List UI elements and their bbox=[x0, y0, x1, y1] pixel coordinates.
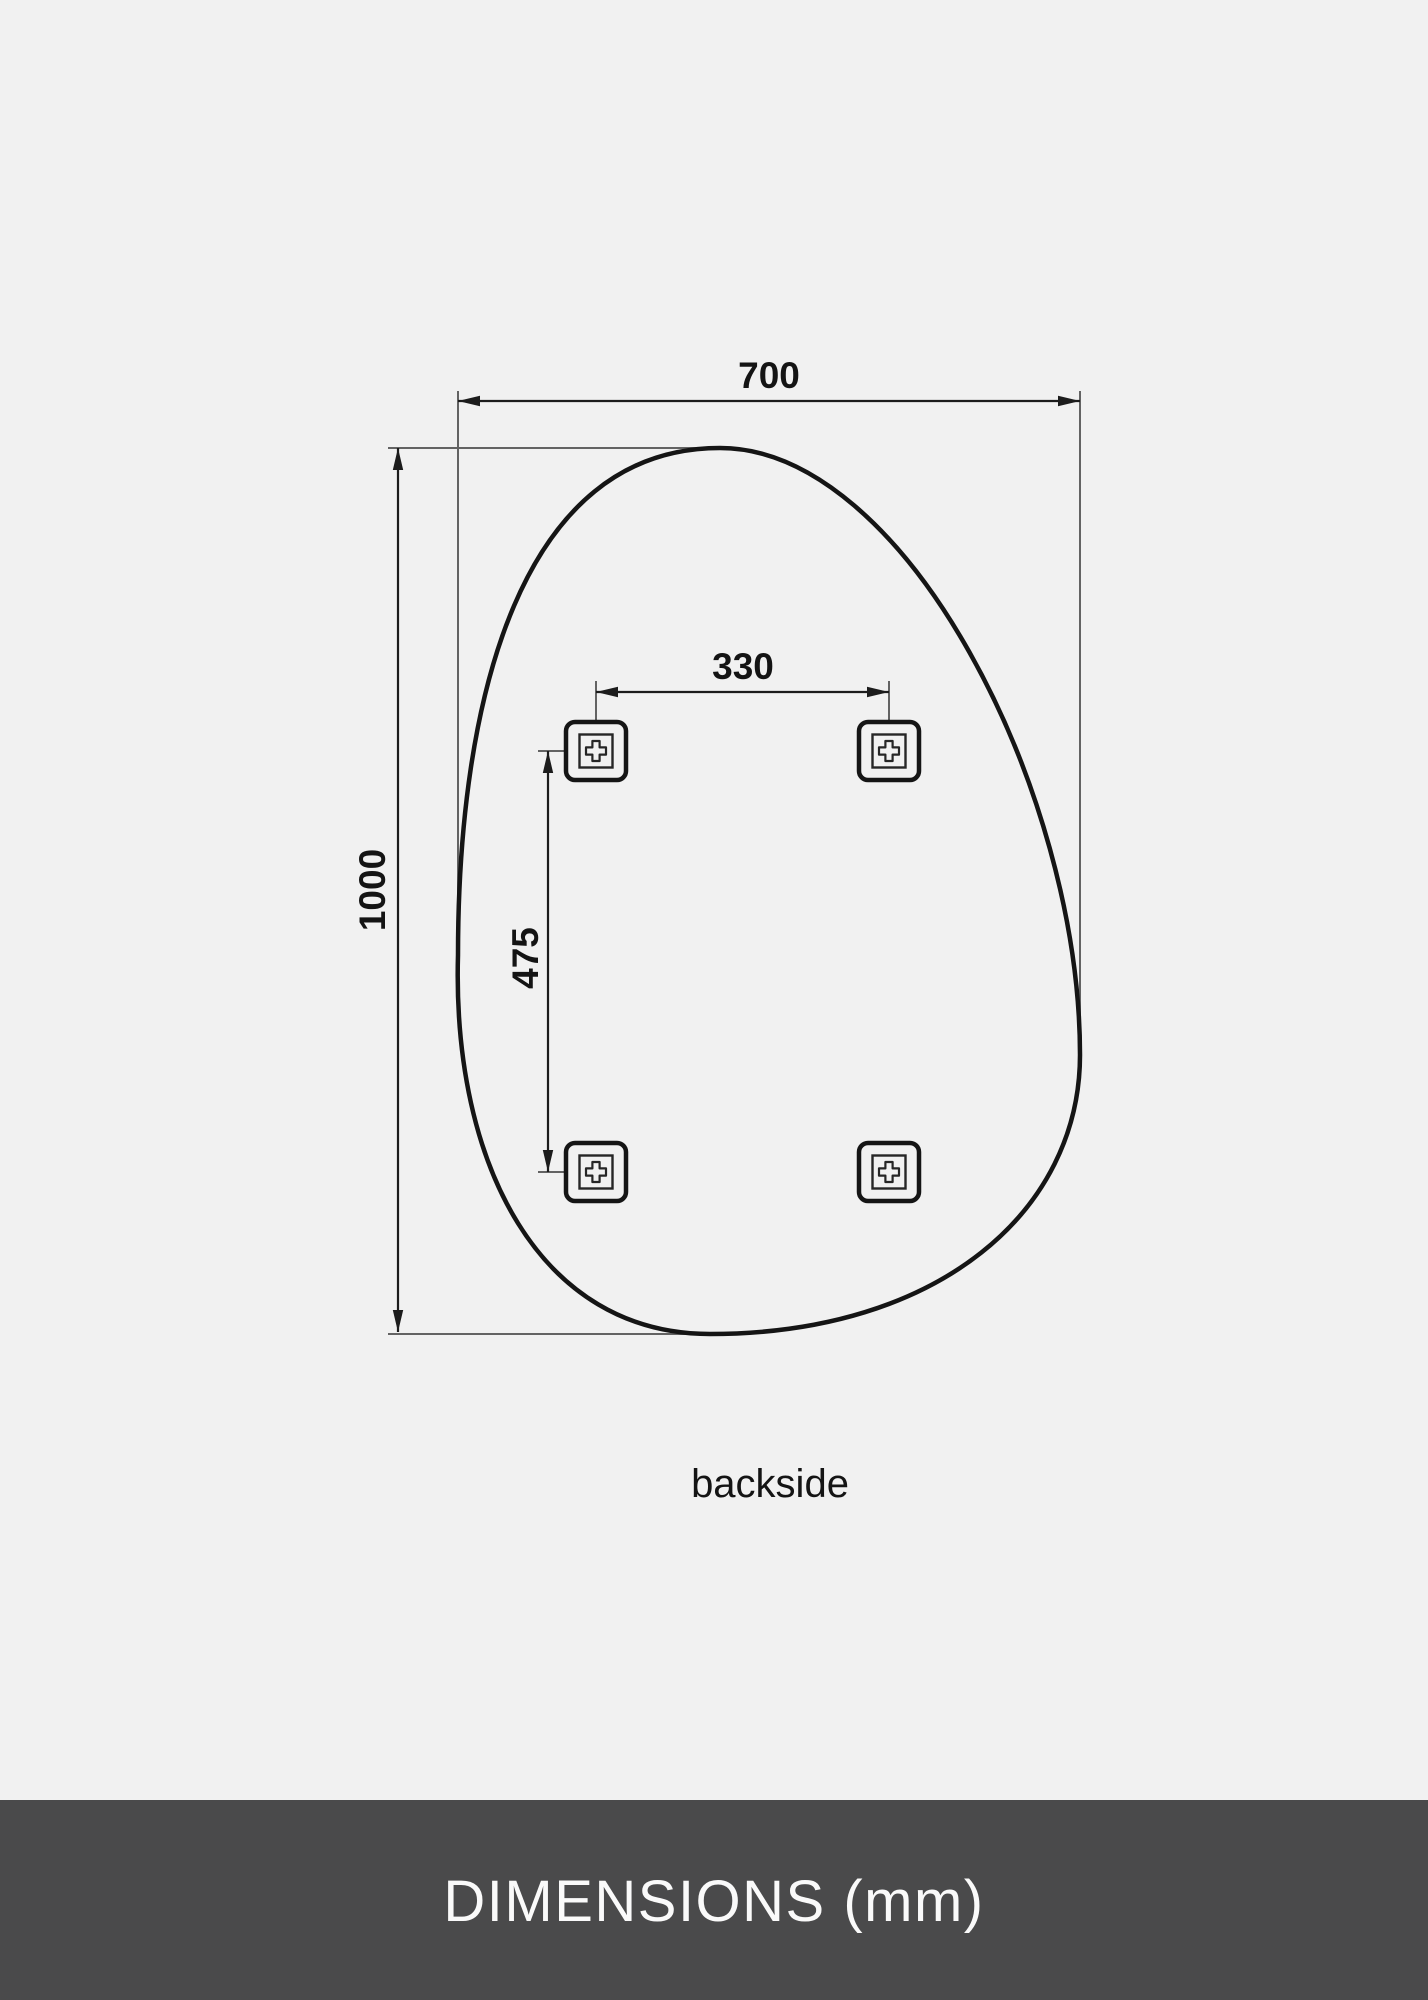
diagram-caption: backside bbox=[691, 1462, 849, 1506]
arrowhead-left-icon bbox=[458, 396, 480, 406]
bracket-outer-square bbox=[566, 1143, 626, 1201]
bracket-spacing-horizontal-label: 330 bbox=[712, 646, 774, 687]
arrowhead-right-icon bbox=[1058, 396, 1080, 406]
arrowhead-up-icon bbox=[393, 448, 403, 470]
mounting-bracket-top-right bbox=[859, 722, 919, 780]
mounting-bracket-top-left bbox=[566, 722, 626, 780]
bracket-spacing-vertical-label: 475 bbox=[505, 927, 546, 989]
arrowhead-right-icon bbox=[867, 687, 889, 697]
footer-title: DIMENSIONS (mm) bbox=[443, 1869, 984, 1934]
bracket-outer-square bbox=[566, 722, 626, 780]
mounting-bracket-bottom-left bbox=[566, 1143, 626, 1201]
width-dimension: 700 bbox=[458, 355, 1080, 406]
height-dimension: 1000 bbox=[352, 448, 403, 1332]
bracket-spacing-vertical-dimension: 475 bbox=[505, 751, 553, 1172]
arrowhead-down-icon bbox=[543, 1150, 553, 1172]
bracket-outer-square bbox=[859, 722, 919, 780]
mirror-dimension-diagram: 700 1000 330 475 bbox=[0, 0, 1428, 2000]
extension-lines bbox=[388, 391, 1080, 1334]
width-dimension-label: 700 bbox=[738, 355, 800, 396]
height-dimension-label: 1000 bbox=[352, 849, 393, 931]
mounting-bracket-bottom-right bbox=[859, 1143, 919, 1201]
arrowhead-left-icon bbox=[596, 687, 618, 697]
mirror-dimension-figure: 700 1000 330 475 bbox=[0, 0, 1428, 2000]
arrowhead-up-icon bbox=[543, 751, 553, 773]
arrowhead-down-icon bbox=[393, 1310, 403, 1332]
bracket-spacing-horizontal-dimension: 330 bbox=[596, 646, 889, 697]
bracket-outer-square bbox=[859, 1143, 919, 1201]
mirror-outline bbox=[458, 448, 1080, 1334]
footer: DIMENSIONS (mm) bbox=[0, 1800, 1428, 2000]
